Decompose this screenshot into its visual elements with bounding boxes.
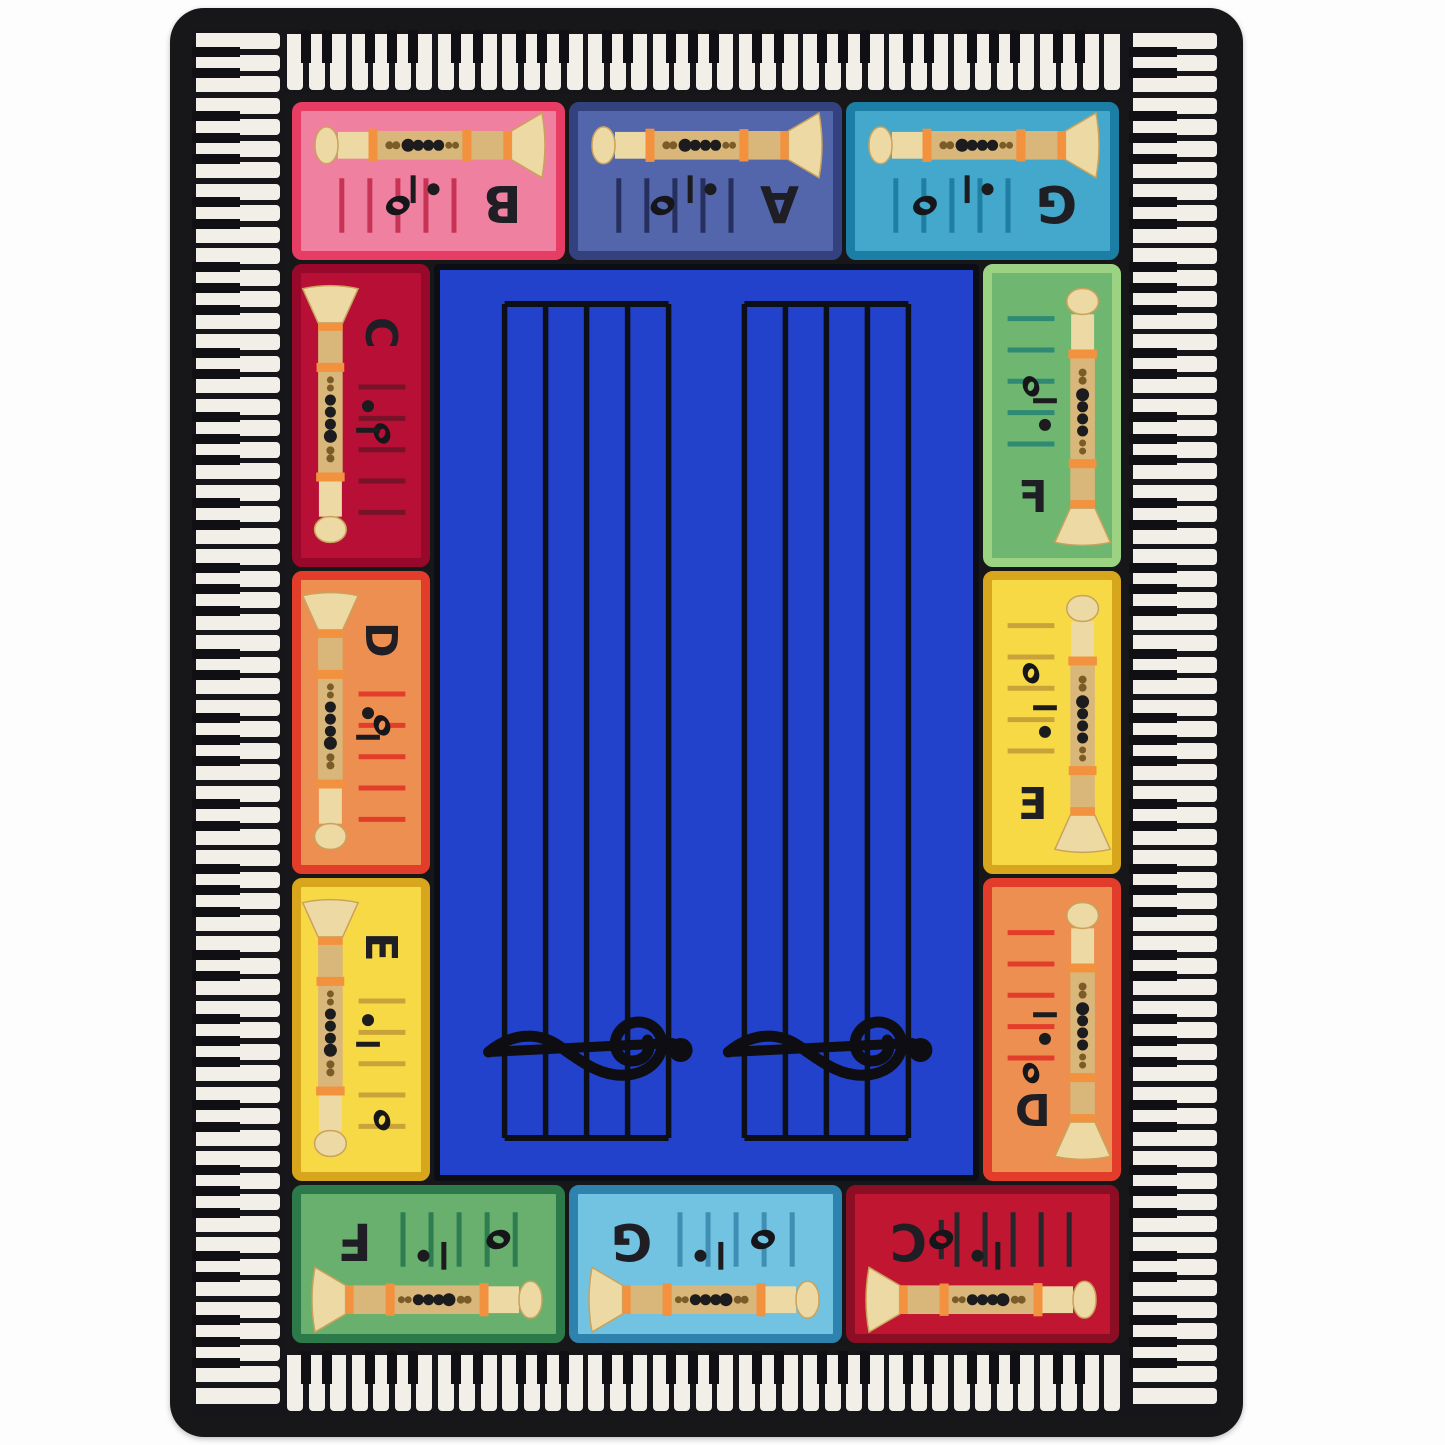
black-key [192, 1337, 240, 1347]
finger-hole [423, 1294, 434, 1305]
black-key [192, 520, 240, 530]
treble-clef-icon [489, 1022, 693, 1075]
black-key [1129, 799, 1177, 809]
finger-hole [1018, 1296, 1026, 1304]
black-key [623, 1351, 633, 1384]
black-key [1053, 30, 1063, 63]
note-letter: G [611, 1212, 652, 1271]
white-key [196, 1280, 280, 1296]
white-key [1133, 678, 1217, 694]
panel-E-left-3: E [292, 878, 430, 1181]
black-key [1129, 154, 1177, 164]
finger-hole [327, 376, 334, 383]
finger-hole [325, 1009, 336, 1020]
white-key [196, 614, 280, 630]
black-key [473, 1351, 483, 1384]
black-key [967, 30, 977, 63]
black-key [192, 1358, 240, 1368]
black-key [1129, 907, 1177, 917]
note-letter: E [355, 932, 405, 962]
black-key [774, 1351, 784, 1384]
finger-hole [1079, 676, 1087, 684]
black-key [192, 584, 240, 594]
black-key [192, 799, 240, 809]
black-key [192, 111, 240, 121]
finger-hole [327, 998, 334, 1005]
finger-hole [1079, 983, 1087, 991]
white-key [1133, 1130, 1217, 1146]
black-key [192, 670, 240, 680]
white-key [481, 34, 497, 90]
black-key [451, 30, 461, 63]
black-key [408, 1351, 418, 1384]
finger-hole [729, 142, 736, 149]
black-key [1129, 369, 1177, 379]
black-key [1129, 412, 1177, 422]
black-key [903, 1351, 913, 1384]
finger-hole [700, 140, 711, 151]
finger-hole [977, 140, 988, 151]
finger-hole [325, 702, 336, 713]
black-key [192, 498, 240, 508]
white-key [1018, 1355, 1034, 1411]
black-key [301, 30, 311, 63]
white-key [717, 34, 733, 90]
black-key [1129, 1208, 1177, 1218]
finger-hole [987, 140, 998, 151]
black-key [192, 756, 240, 766]
white-key [1133, 528, 1217, 544]
black-key [192, 154, 240, 164]
black-key [666, 1351, 676, 1384]
black-key [1129, 262, 1177, 272]
black-key [1075, 30, 1085, 63]
finger-hole [326, 454, 334, 462]
white-key [1133, 614, 1217, 630]
finger-hole [1079, 369, 1087, 377]
black-key [192, 971, 240, 981]
black-key [1129, 1186, 1177, 1196]
note-letter: G [1036, 174, 1077, 233]
finger-hole [445, 142, 452, 149]
white-key [868, 34, 884, 90]
white-key [567, 34, 583, 90]
finger-hole [324, 1044, 337, 1057]
black-key [1129, 735, 1177, 745]
black-key [1129, 111, 1177, 121]
panel-D-right-3: D [983, 878, 1121, 1181]
finger-hole [722, 142, 729, 149]
black-key [192, 1057, 240, 1067]
thumb-dot [362, 1014, 374, 1026]
finger-hole [959, 1296, 966, 1303]
black-key [1129, 283, 1177, 293]
black-key [1129, 1014, 1177, 1024]
white-key [416, 1355, 432, 1411]
white-key [932, 34, 948, 90]
note-letter: D [355, 622, 405, 658]
black-key [192, 1165, 240, 1175]
white-key [196, 1366, 280, 1382]
finger-hole [1006, 142, 1013, 149]
finger-hole [1079, 1054, 1086, 1061]
black-key [387, 30, 397, 63]
black-key [1129, 133, 1177, 143]
black-key [192, 1122, 240, 1132]
black-key [752, 30, 762, 63]
panel-E-right-2: E [983, 571, 1121, 874]
finger-hole [325, 395, 336, 406]
finger-hole [1076, 388, 1089, 401]
whole-note [1020, 374, 1043, 400]
black-key [365, 1351, 375, 1384]
finger-hole [442, 1293, 455, 1306]
black-key [1129, 971, 1177, 981]
black-key [1129, 1272, 1177, 1282]
finger-hole [325, 714, 336, 725]
black-key [688, 1351, 698, 1384]
black-key [817, 30, 827, 63]
black-key [1129, 1057, 1177, 1067]
black-key [1075, 1351, 1085, 1384]
white-key [416, 34, 432, 90]
white-key [567, 1355, 583, 1411]
finger-hole [325, 1033, 336, 1044]
finger-hole [327, 683, 334, 690]
whole-note [371, 421, 394, 447]
finger-hole [952, 1296, 959, 1303]
white-key [1133, 227, 1217, 243]
black-key [1129, 219, 1177, 229]
black-key [192, 455, 240, 465]
note-letter: F [1018, 473, 1048, 523]
black-key [1129, 606, 1177, 616]
white-key [1133, 463, 1217, 479]
thumb-dot [428, 183, 440, 195]
panel-F-bottom-1: F [292, 1185, 565, 1343]
note-letter: F [337, 1212, 371, 1271]
panel-C-bottom-3: C [846, 1185, 1119, 1343]
white-key [1104, 34, 1120, 90]
finger-hole [433, 140, 444, 151]
note-letter: B [483, 174, 521, 233]
thumb-dot [1039, 1033, 1051, 1045]
black-key [1129, 455, 1177, 465]
finger-hole [423, 140, 434, 151]
black-key [192, 1014, 240, 1024]
finger-hole [1079, 991, 1087, 999]
black-key [1129, 1315, 1177, 1325]
white-key [1104, 1355, 1120, 1411]
white-key [1133, 1280, 1217, 1296]
black-key [192, 713, 240, 723]
panel-D-left-2: D [292, 571, 430, 874]
black-key [192, 197, 240, 207]
finger-hole [326, 1068, 334, 1076]
white-key [330, 1355, 346, 1411]
thumb-dot [982, 183, 994, 195]
finger-hole [690, 1294, 701, 1305]
white-key [196, 76, 280, 92]
finger-hole [719, 1293, 732, 1306]
black-key [408, 30, 418, 63]
white-key [196, 678, 280, 694]
white-key [1133, 1065, 1217, 1081]
thumb-dot [971, 1250, 983, 1262]
note-letter: D [1015, 1087, 1051, 1137]
finger-hole [1079, 448, 1086, 455]
black-key [1129, 950, 1177, 960]
black-key [192, 412, 240, 422]
black-key [192, 1251, 240, 1261]
white-key [1133, 313, 1217, 329]
black-key [1129, 670, 1177, 680]
white-key [631, 34, 647, 90]
black-key [1129, 1337, 1177, 1347]
finger-hole [967, 1294, 978, 1305]
finger-hole [385, 141, 393, 149]
white-key [932, 1355, 948, 1411]
white-key [631, 1355, 647, 1411]
staff-group-1 [489, 304, 693, 1138]
piano-key-border-left [192, 30, 284, 1415]
black-key [1053, 1351, 1063, 1384]
black-key [989, 1351, 999, 1384]
finger-hole [326, 446, 334, 454]
black-key [192, 133, 240, 143]
black-key [192, 649, 240, 659]
white-key [1133, 979, 1217, 995]
white-key [481, 1355, 497, 1411]
white-key [196, 1216, 280, 1232]
whole-note [371, 713, 394, 739]
thumb-dot [362, 400, 374, 412]
black-key [192, 1186, 240, 1196]
white-key [1018, 34, 1034, 90]
black-key [192, 1315, 240, 1325]
black-key [192, 735, 240, 745]
black-key [192, 262, 240, 272]
black-key [1129, 649, 1177, 659]
thumb-dot [417, 1250, 429, 1262]
white-key [782, 34, 798, 90]
finger-hole [326, 761, 334, 769]
black-key [817, 1351, 827, 1384]
white-key [196, 764, 280, 780]
black-key [192, 950, 240, 960]
black-key [451, 1351, 461, 1384]
black-key [322, 30, 332, 63]
panel-G-top-3: G [846, 102, 1119, 260]
thumb-dot [694, 1250, 706, 1262]
black-key [1010, 30, 1020, 63]
black-key [537, 1351, 547, 1384]
white-key [196, 313, 280, 329]
black-key [192, 369, 240, 379]
white-key [196, 463, 280, 479]
treble-clef-icon [728, 1022, 932, 1075]
panel-F-right-1: F [983, 264, 1121, 567]
black-key [1129, 47, 1177, 57]
white-key [1133, 1388, 1217, 1404]
black-key [666, 30, 676, 63]
finger-hole [1079, 1062, 1086, 1069]
finger-hole [326, 1060, 334, 1068]
black-key [192, 885, 240, 895]
finger-hole [324, 737, 337, 750]
whole-note [383, 192, 413, 218]
black-key [1129, 584, 1177, 594]
black-key [860, 30, 870, 63]
black-key [1129, 885, 1177, 895]
black-key [192, 348, 240, 358]
whole-note [748, 1226, 778, 1252]
finger-hole [1077, 425, 1088, 436]
thumb-dot [1039, 726, 1051, 738]
white-key [1083, 34, 1099, 90]
thumb-dot [362, 707, 374, 719]
panel-B-top-1: B [292, 102, 565, 260]
whole-note [371, 1107, 394, 1133]
black-key [1129, 821, 1177, 831]
white-key [1133, 915, 1217, 931]
black-key [1129, 305, 1177, 315]
black-key [602, 30, 612, 63]
white-key [196, 1065, 280, 1081]
white-key [196, 227, 280, 243]
black-key [838, 30, 848, 63]
finger-hole [1077, 413, 1088, 424]
finger-hole [1077, 1039, 1088, 1050]
black-key [559, 1351, 569, 1384]
black-key [967, 1351, 977, 1384]
black-key [1129, 520, 1177, 530]
rug: BAGFEDCGFEDC [170, 8, 1243, 1437]
staff-group-2 [728, 304, 932, 1138]
black-key [192, 68, 240, 78]
black-key [1010, 1351, 1020, 1384]
black-key [688, 30, 698, 63]
white-key [196, 829, 280, 845]
finger-hole [398, 1296, 405, 1303]
finger-hole [1079, 440, 1086, 447]
black-key [924, 30, 934, 63]
finger-hole [327, 384, 334, 391]
finger-hole [327, 990, 334, 997]
whole-note [1020, 1060, 1043, 1086]
black-key [1129, 563, 1177, 573]
panel-G-bottom-2: G [569, 1185, 842, 1343]
whole-note [926, 1226, 956, 1252]
white-key [196, 1388, 280, 1404]
finger-hole [1077, 708, 1088, 719]
white-key [1133, 162, 1217, 178]
whole-note [1020, 660, 1043, 686]
white-key [196, 915, 280, 931]
piano-key-border-right [1129, 30, 1221, 1415]
white-key [196, 979, 280, 995]
black-key [1129, 197, 1177, 207]
black-key [192, 47, 240, 57]
white-key [1133, 1366, 1217, 1382]
finger-hole [1079, 747, 1086, 754]
black-key [1129, 348, 1177, 358]
black-key [1129, 1122, 1177, 1132]
black-key [192, 1272, 240, 1282]
black-key [1129, 1036, 1177, 1046]
finger-hole [996, 1293, 1009, 1306]
black-key [709, 1351, 719, 1384]
finger-hole [324, 430, 337, 443]
black-key [301, 1351, 311, 1384]
black-key [192, 1208, 240, 1218]
finger-hole [1077, 1027, 1088, 1038]
white-key [782, 1355, 798, 1411]
finger-hole [662, 141, 670, 149]
black-key [192, 1100, 240, 1110]
white-key [1083, 1355, 1099, 1411]
black-key [192, 434, 240, 444]
finger-hole [452, 142, 459, 149]
black-key [709, 30, 719, 63]
black-key [838, 1351, 848, 1384]
note-letter: C [355, 317, 405, 349]
black-key [1129, 434, 1177, 444]
finger-hole [710, 140, 721, 151]
black-key [1129, 1165, 1177, 1175]
black-key [1129, 1100, 1177, 1110]
finger-hole [679, 139, 692, 152]
photo-background: BAGFEDCGFEDC [0, 0, 1445, 1445]
black-key [1129, 68, 1177, 78]
white-key [196, 1130, 280, 1146]
finger-hole [682, 1296, 689, 1303]
black-key [192, 305, 240, 315]
finger-hole [325, 726, 336, 737]
finger-hole [700, 1294, 711, 1305]
black-key [1129, 756, 1177, 766]
note-letter: C [890, 1212, 927, 1271]
black-key [365, 30, 375, 63]
black-key [192, 864, 240, 874]
finger-hole [327, 691, 334, 698]
finger-hole [326, 753, 334, 761]
panel-A-top-2: A [569, 102, 842, 260]
black-key [903, 30, 913, 63]
finger-hole [977, 1294, 988, 1305]
note-letter: A [760, 174, 799, 233]
black-key [516, 30, 526, 63]
black-key [774, 30, 784, 63]
black-key [623, 30, 633, 63]
finger-hole [939, 141, 947, 149]
finger-hole [1077, 732, 1088, 743]
black-key [192, 1036, 240, 1046]
white-key [868, 1355, 884, 1411]
finger-hole [1077, 401, 1088, 412]
black-key [1129, 713, 1177, 723]
black-key [537, 30, 547, 63]
black-key [860, 1351, 870, 1384]
black-key [192, 219, 240, 229]
white-key [1133, 1216, 1217, 1232]
black-key [387, 1351, 397, 1384]
black-key [1129, 1358, 1177, 1368]
finger-hole [1079, 377, 1087, 385]
white-key [196, 162, 280, 178]
black-key [322, 1351, 332, 1384]
black-key [924, 1351, 934, 1384]
